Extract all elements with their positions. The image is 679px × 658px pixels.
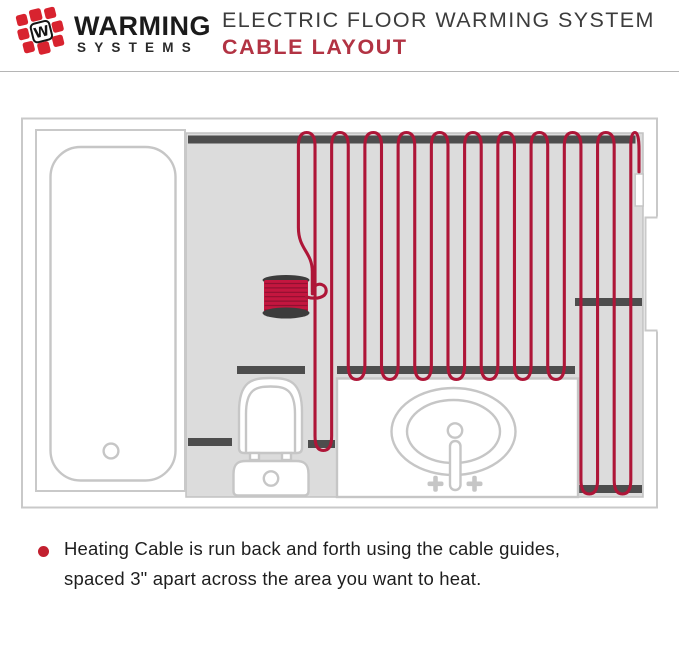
cable-end-slot [635, 174, 643, 206]
note-text-line2: spaced 3" apart across the area you want… [64, 568, 481, 590]
toilet [234, 378, 309, 496]
cable-spool [263, 275, 310, 319]
toilet-hinge-left [250, 453, 259, 460]
toilet-hinge-right [282, 453, 291, 460]
sink-drain [448, 423, 462, 437]
cable-guide-mid-left [237, 366, 305, 374]
bathtub [51, 147, 176, 481]
cable-guide-left-wall [188, 438, 232, 446]
faucet-handle-right-icon [472, 476, 477, 492]
note-text-line1: Heating Cable is run back and forth usin… [64, 538, 560, 560]
note-bullet-icon [38, 546, 49, 557]
door-opening-cover [648, 217, 662, 332]
spool-flange-bottom [263, 308, 310, 319]
cable-guide-mid-vanity [337, 366, 575, 374]
toilet-flush-button [264, 471, 278, 485]
faucet-handle-left-icon [433, 476, 438, 492]
toilet-seat [239, 378, 302, 453]
vanity-sink [337, 379, 578, 498]
sink-faucet [450, 441, 461, 490]
spool-ridges [265, 284, 308, 310]
bathtub-drain [104, 444, 119, 459]
